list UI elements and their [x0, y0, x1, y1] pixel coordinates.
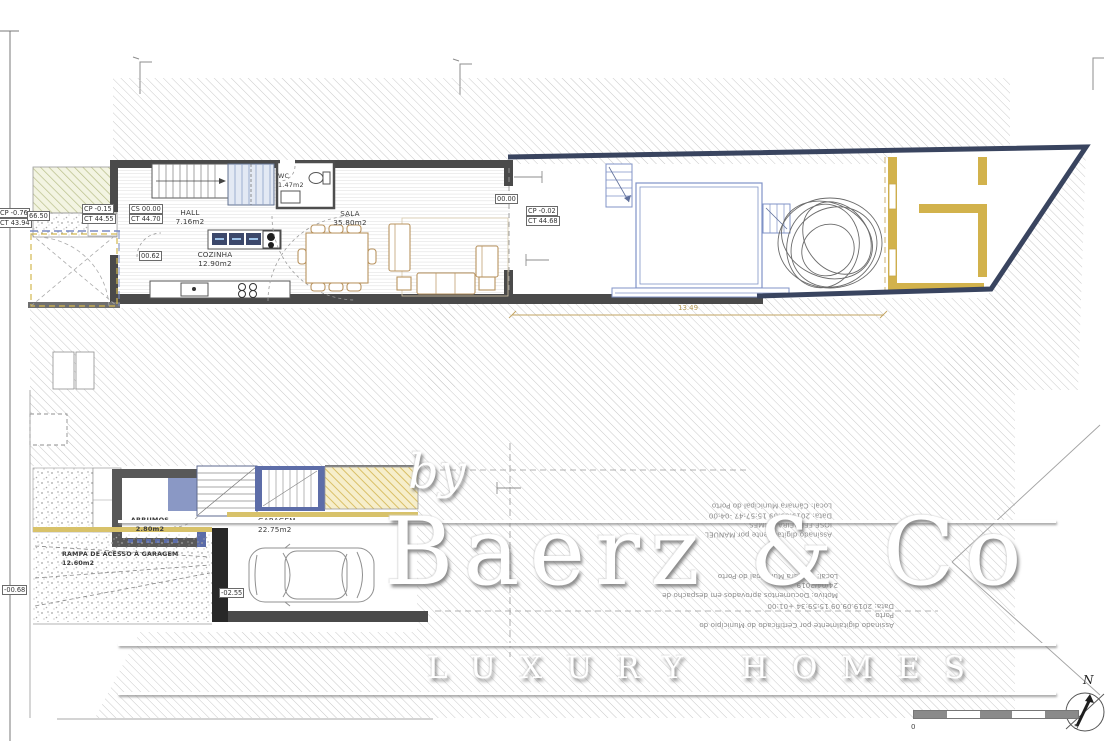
watermark-by: by: [408, 444, 466, 500]
floorplan-sheet: CP -0.76 CT 43.94 66.50 CP -0.15 CT 44.5…: [0, 0, 1109, 741]
entrance-sketch: [30, 231, 120, 306]
ramp-wall: [212, 528, 228, 622]
scale-end-label: 5: [1074, 723, 1078, 731]
garage-rear-wall: [227, 611, 428, 622]
level-label-step: 00.62: [139, 251, 162, 261]
scale-segment: [1045, 711, 1078, 718]
level-label-mark: 66.50: [27, 211, 50, 221]
room-area: 7.16m2: [158, 217, 222, 226]
room-area: 2.80m2: [120, 525, 180, 534]
room-name: COZINHA: [185, 250, 245, 259]
level-label-ramp: -00.68: [2, 585, 27, 595]
room-label-wc: WC 1.47m2: [278, 172, 322, 190]
room-label-sala: SALA 35.80m2: [320, 209, 380, 227]
scale-bar: [913, 710, 1079, 719]
staircase-lower: [197, 466, 325, 516]
scale-segment: [980, 711, 1013, 718]
level-label-cp-porch: CP -0.15: [82, 204, 114, 214]
room-name: RAMPA DE ACESSO À GARAGEM: [62, 550, 202, 559]
sink-icon: [281, 191, 300, 203]
courtyard-outline: [606, 164, 790, 297]
scale-start-label: 0: [911, 723, 915, 731]
room-area: 22.75m2: [258, 525, 318, 534]
room-label-arrumos: ARRUMOS 2.80m2: [120, 516, 180, 534]
room-label-cozinha: COZINHA 12.90m2: [185, 250, 245, 268]
level-label-ct-porch: CT 44.55: [82, 214, 116, 224]
scale-segment: [947, 711, 980, 718]
room-label-garagem: GARAGEM 22.75m2: [258, 516, 318, 534]
level-label-ct-patio: CT 44.68: [526, 216, 560, 226]
room-label-hall: HALL 7.16m2: [158, 208, 222, 226]
plan-linework: [0, 0, 1109, 741]
level-label-zero: 00.00: [495, 194, 518, 204]
watermark-rule-bottom: [118, 692, 1056, 695]
room-area: 12.90m2: [185, 259, 245, 268]
level-label-garage-floor: -02.55: [219, 588, 244, 598]
dining-table: [298, 225, 376, 291]
scale-segment: [914, 711, 947, 718]
yellow-walls: [888, 157, 987, 291]
room-area: 35.80m2: [320, 218, 380, 227]
level-label-cp-left: CP -0.76: [0, 208, 30, 218]
stamp-line: Porto: [636, 611, 894, 621]
level-label-cp-patio: CP -0.02: [526, 206, 558, 216]
room-area: 12.60m2: [62, 559, 202, 568]
room-name: SALA: [320, 209, 380, 218]
room-name: WC: [278, 172, 322, 181]
stamp-line: Assinado digitalmente por Certificado do…: [636, 620, 894, 630]
watermark-rule-mid: [118, 643, 1056, 646]
plot-boundary: [508, 147, 1086, 296]
dimension-label: 13.49: [678, 304, 698, 312]
watermark-brand: Baerz & Co: [355, 506, 1061, 600]
room-name: HALL: [158, 208, 222, 217]
scale-segment: [1012, 711, 1045, 718]
room-label-rampa: RAMPA DE ACESSO À GARAGEM 12.60m2: [62, 550, 202, 568]
ramp-area: [33, 534, 212, 624]
north-label: N: [1083, 676, 1094, 684]
room-area: 1.47m2: [278, 181, 322, 190]
watermark-tagline: LUXURY HOMES: [355, 650, 1061, 686]
